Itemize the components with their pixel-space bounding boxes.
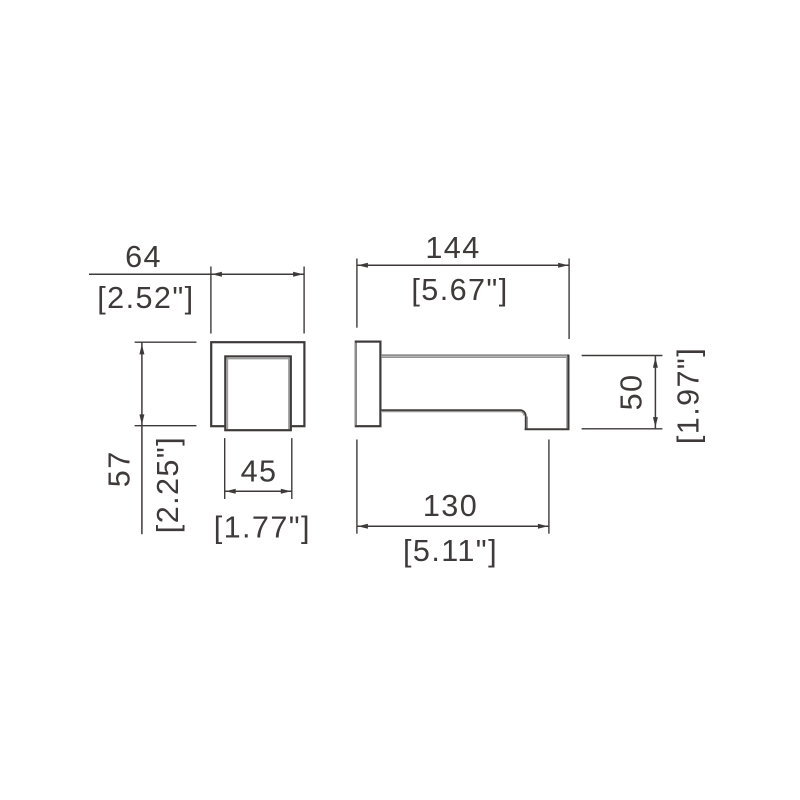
svg-text:[1.97"]: [1.97"] (671, 347, 705, 444)
svg-text:144: 144 (425, 231, 480, 265)
svg-text:[5.11"]: [5.11"] (403, 534, 498, 568)
svg-text:[2.25"]: [2.25"] (151, 436, 185, 533)
svg-text:50: 50 (615, 374, 649, 411)
svg-text:64: 64 (125, 240, 162, 274)
svg-text:57: 57 (102, 450, 136, 487)
svg-text:[2.52"]: [2.52"] (97, 281, 194, 315)
svg-text:[1.77"]: [1.77"] (214, 510, 311, 544)
svg-text:130: 130 (423, 489, 478, 523)
svg-text:[5.67"]: [5.67"] (411, 273, 508, 307)
svg-text:45: 45 (241, 454, 278, 488)
